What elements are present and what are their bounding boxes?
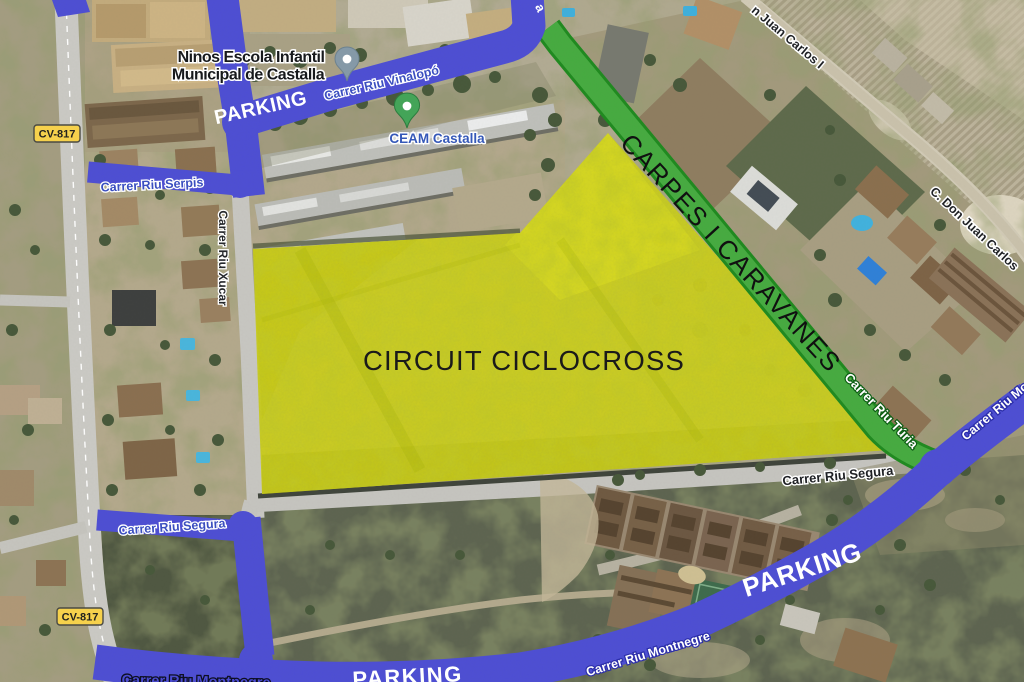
svg-text:CV-817: CV-817 [62,612,99,624]
svg-text:Municipal de Castalla: Municipal de Castalla [172,67,325,84]
svg-text:Carrer Riu Montnegre: Carrer Riu Montnegre [121,673,270,682]
svg-text:CV-817: CV-817 [39,129,76,141]
svg-text:Ninos Escola Infantil: Ninos Escola Infantil [178,49,325,66]
svg-text:Carrer Riu Xucar: Carrer Riu Xucar [216,210,230,306]
svg-text:CEAM Castalla: CEAM Castalla [389,131,485,146]
svg-text:CIRCUIT CICLOCROSS: CIRCUIT CICLOCROSS [363,345,685,376]
